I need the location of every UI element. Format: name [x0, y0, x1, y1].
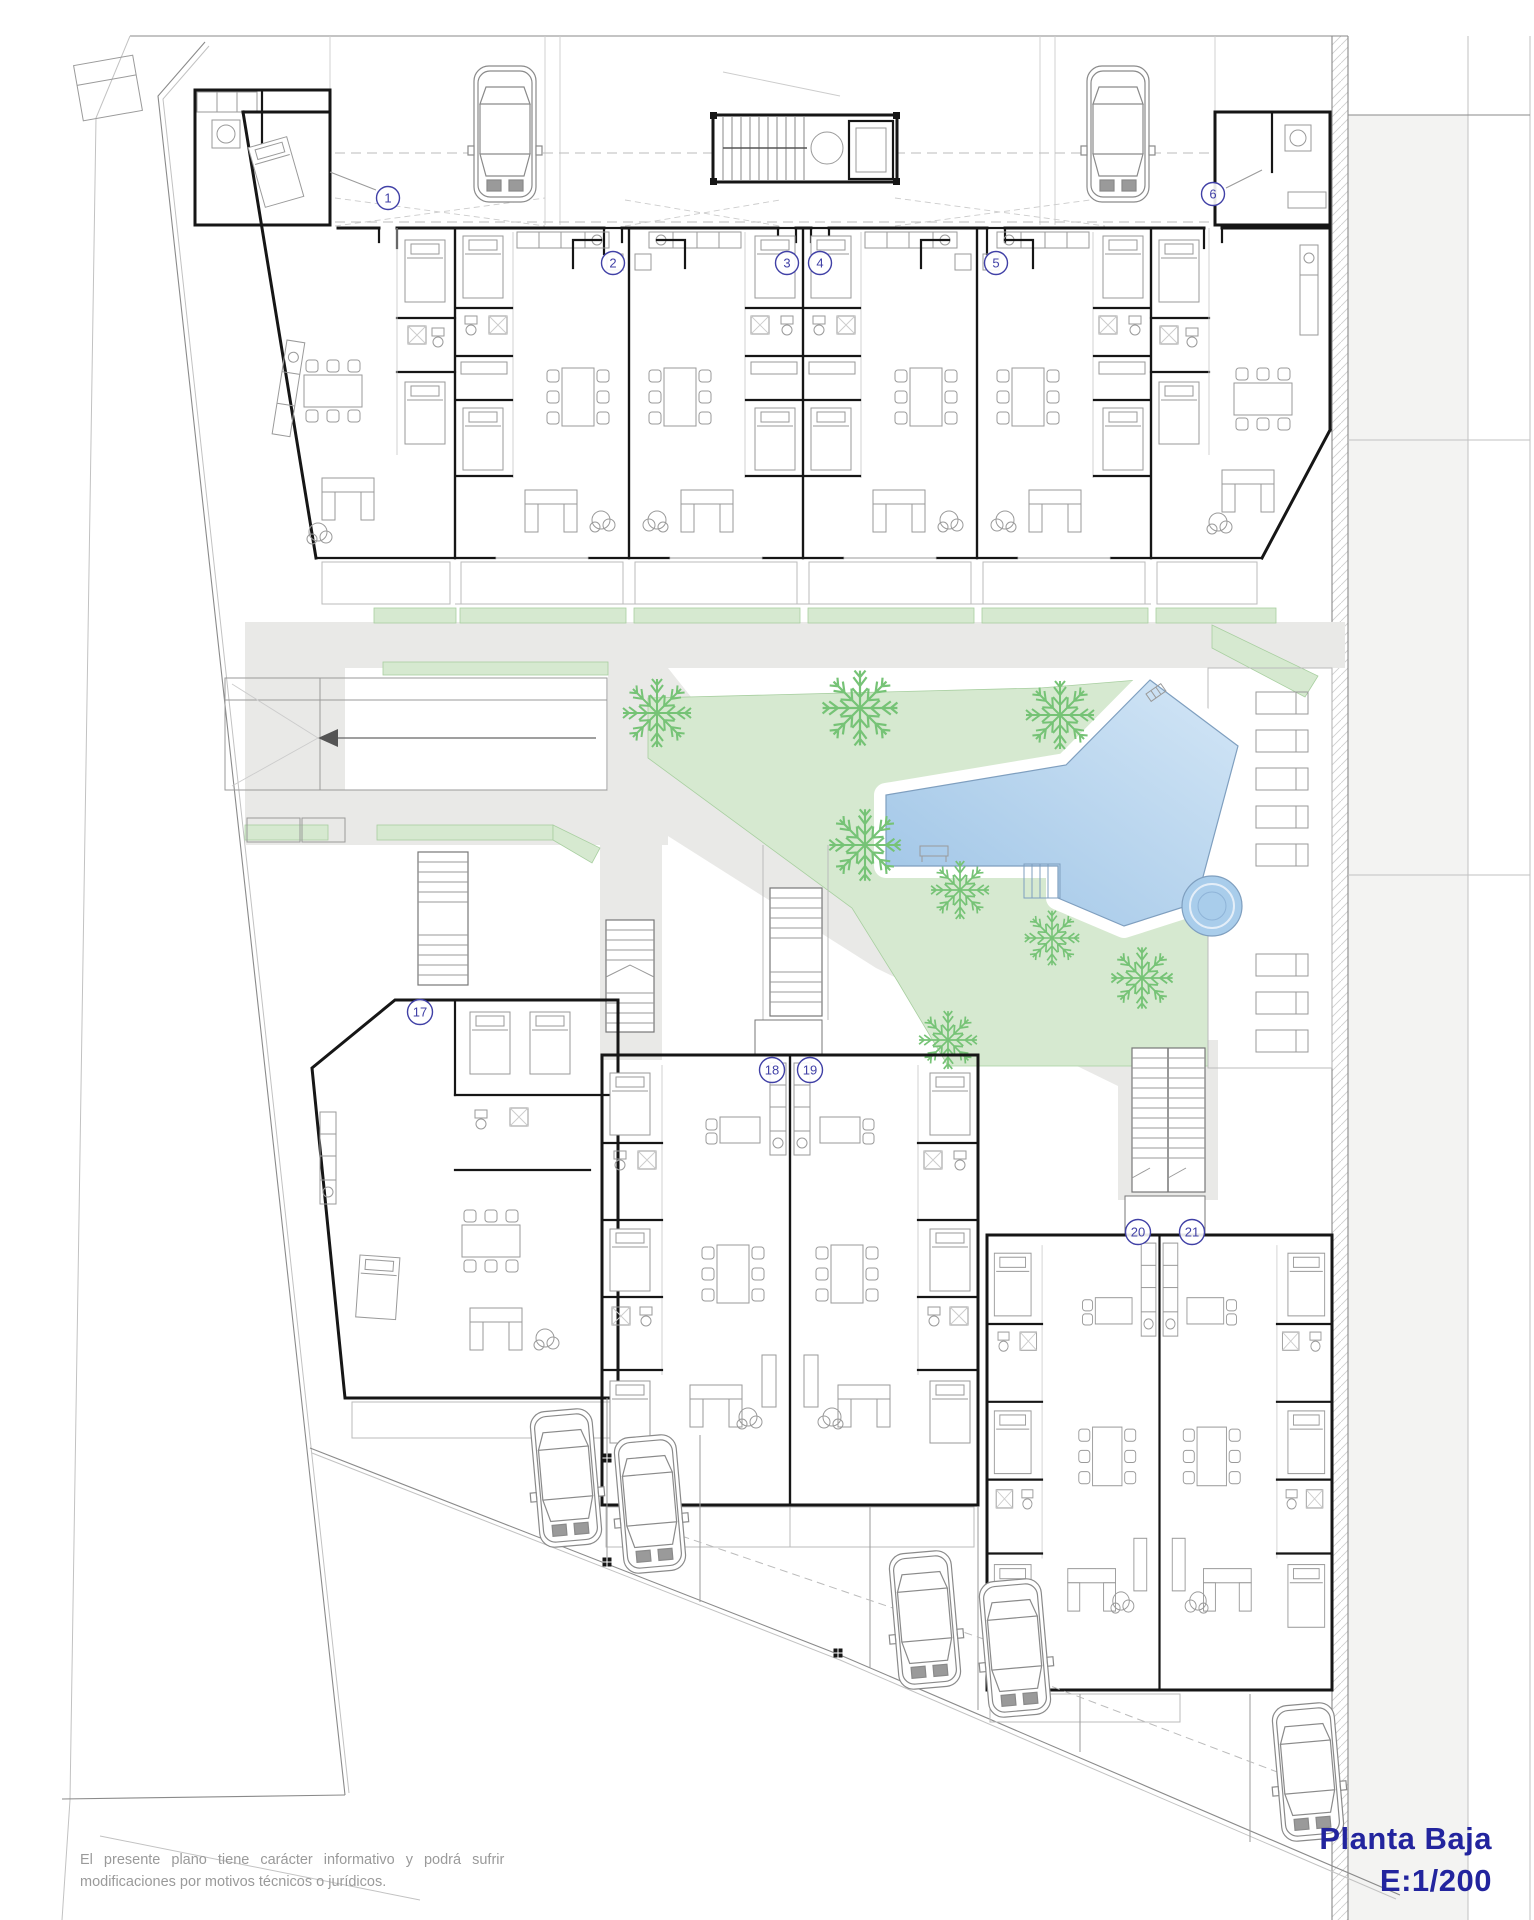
svg-text:20: 20	[1131, 1225, 1145, 1240]
svg-text:21: 21	[1185, 1225, 1199, 1240]
unit-label-3: 3	[776, 252, 799, 275]
car-icon	[1081, 66, 1155, 202]
road-surface	[1348, 115, 1468, 1920]
svg-text:2: 2	[609, 256, 616, 271]
jacuzzi-icon	[1182, 876, 1242, 936]
stair-center-b	[606, 920, 654, 1032]
svg-text:5: 5	[992, 256, 999, 271]
svg-text:3: 3	[783, 256, 790, 271]
unit-label-6: 6	[1202, 183, 1225, 206]
floor-plan-drawing: 1 2 3 4 5 6 17 18 19 20 21 Planta Baja E…	[0, 0, 1534, 1920]
unit-label-1: 1	[377, 187, 400, 210]
page-title: Planta Baja	[1319, 1821, 1492, 1856]
floor-plan-page: 1 2 3 4 5 6 17 18 19 20 21 Planta Baja E…	[0, 0, 1534, 1920]
unit-label-21: 21	[1180, 1220, 1205, 1245]
disclaimer-line-2: modificaciones por motivos técnicos o ju…	[80, 1874, 386, 1890]
unit-label-20: 20	[1126, 1220, 1151, 1245]
unit-label-2: 2	[602, 252, 625, 275]
stair-west	[418, 852, 468, 985]
svg-text:18: 18	[765, 1063, 779, 1078]
svg-text:4: 4	[816, 256, 823, 271]
car-icon	[468, 66, 542, 202]
property-wall-hatch	[1332, 36, 1348, 1920]
unit-label-5: 5	[985, 252, 1008, 275]
unit-label-17: 17	[408, 1000, 433, 1025]
annex-right	[1215, 112, 1330, 225]
scale-label: E:1/200	[1380, 1863, 1492, 1898]
unit-label-18: 18	[760, 1058, 785, 1083]
svg-text:6: 6	[1209, 187, 1216, 202]
unit-label-19: 19	[798, 1058, 823, 1083]
svg-text:1: 1	[384, 191, 391, 206]
svg-text:17: 17	[413, 1005, 427, 1020]
stair-east	[1132, 1048, 1205, 1192]
svg-text:19: 19	[803, 1063, 817, 1078]
unit-label-4: 4	[809, 252, 832, 275]
disclaimer-line-1: El presente plano tiene carácter informa…	[80, 1852, 504, 1868]
